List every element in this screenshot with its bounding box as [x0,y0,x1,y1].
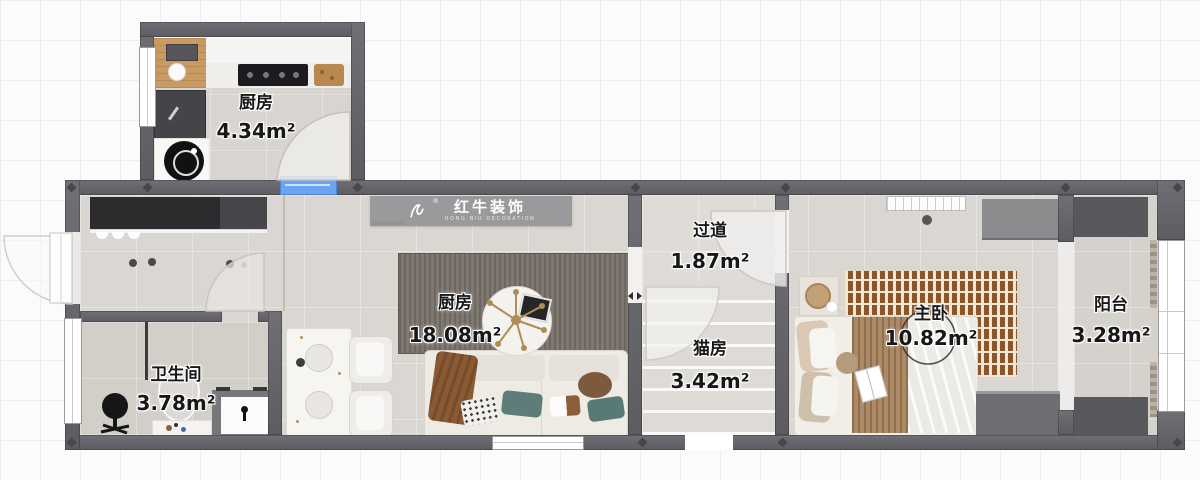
room-area: 10.82m² [885,326,978,350]
annex-counter-top [206,38,351,64]
cooktop [238,64,308,86]
balcony-rough-wall-edge-top [1150,240,1157,308]
ceiling-light [922,215,932,225]
vanity-handle [253,387,267,391]
pillow-white-brown [549,395,580,417]
place-setting [305,344,333,372]
dining-chair [349,390,393,438]
pillow-round-brown [578,372,612,398]
bedroom-top-cabinet [982,199,1058,240]
ceiling-light [129,259,137,267]
room-name: 主卧 [914,299,948,324]
outer-wall-bottom [65,435,1185,450]
room-name: 厨房 [239,88,273,113]
living-hallway-wall [628,195,642,435]
living-bottom-window [492,436,584,450]
dining-chair [349,336,393,384]
entry-door [4,233,72,304]
watermark-subtitle: HONG NIU DECORATION [445,217,536,222]
entry-living-seam [283,195,285,311]
label-living: 厨房 18.08m² [409,288,502,347]
shelf-item [174,423,178,427]
table-bowl [296,358,305,367]
balcony-cabinet-bottom [1074,397,1148,435]
registered-mark: ® [433,198,439,205]
room-area: 3.28m² [1072,323,1151,347]
balcony-cabinet-top [1074,197,1148,237]
washing-machine-dot [191,148,197,154]
balcony-right-window [1158,240,1185,412]
bed-pillow-white [809,327,838,369]
cat-room-bottom-opening [685,435,733,450]
room-area: 3.78m² [137,391,216,415]
gold-utensil [296,420,299,423]
annex-wall-top [140,22,365,37]
entry-cabinet [220,197,267,229]
label-hallway: 过道 1.87m² [671,216,750,273]
place-setting [305,391,333,419]
ceiling-light [226,260,234,268]
label-balcony: 阳台 3.28m² [1072,290,1151,347]
hongniu-bull-logo-icon [407,201,427,221]
room-name: 阳台 [1094,290,1128,315]
room-name: 卫生间 [150,360,201,385]
label-cat-room: 猫房 3.42m² [671,334,750,393]
outer-wall-top [65,180,1185,195]
annex-mini-sink [166,44,198,61]
pillow-teal [501,390,543,418]
annex-wall-right [351,22,365,180]
room-name: 猫房 [693,334,727,359]
annex-paper-roll [168,63,186,81]
bedroom-wardrobe [976,391,1060,440]
room-area: 3.42m² [671,369,750,393]
label-kitchen-annex: 厨房 4.34m² [217,88,296,143]
bathroom-left-window [64,318,82,424]
bedroom-balcony-wall-top [1058,195,1074,242]
bathroom-wall-right [268,311,282,435]
label-bathroom: 卫生间 3.78m² [137,360,216,415]
entry-door-opening [65,232,80,304]
watermark-banner: ® 红牛装饰 HONG NIU DECORATION [370,196,572,226]
annex-sink-unit [154,90,206,144]
gold-utensil [338,372,341,375]
room-area: 18.08m² [409,323,502,347]
room-area: 4.34m² [217,119,296,143]
bedside-flower [826,301,838,313]
watermark-name: 红牛装饰 [454,200,526,215]
sink-faucet-stem [243,412,246,421]
balcony-rough-wall-edge-bottom [1150,362,1157,417]
bedroom-balcony-wall-bottom [1058,410,1074,435]
kitchen-pass-window-blue [280,176,337,195]
ceiling-light [148,258,156,266]
washing-machine-ring [173,150,199,176]
bathroom-wall-top-left [80,311,222,322]
annex-left-window [139,47,156,127]
entry-wardrobe [90,197,220,229]
room-area: 1.87m² [671,249,750,273]
room-name: 厨房 [438,288,472,313]
bed-pillow-white [811,375,840,417]
bedroom-door-opening [775,210,789,273]
room-name: 过道 [693,216,727,241]
bedroom-radiator [886,196,966,211]
cutting-board [314,64,344,86]
shelf-item [166,425,172,431]
sliding-door-opening [628,247,642,303]
vanity-handle [216,387,230,391]
label-master-bedroom: 主卧 10.82m² [885,299,978,350]
gold-utensil [300,336,303,339]
shelf-item [181,427,186,432]
ceiling-light [241,262,247,268]
floor-plan: ® 红牛装饰 HONG NIU DECORATION 厨房 4.34m² 厨房 … [0,0,1200,480]
